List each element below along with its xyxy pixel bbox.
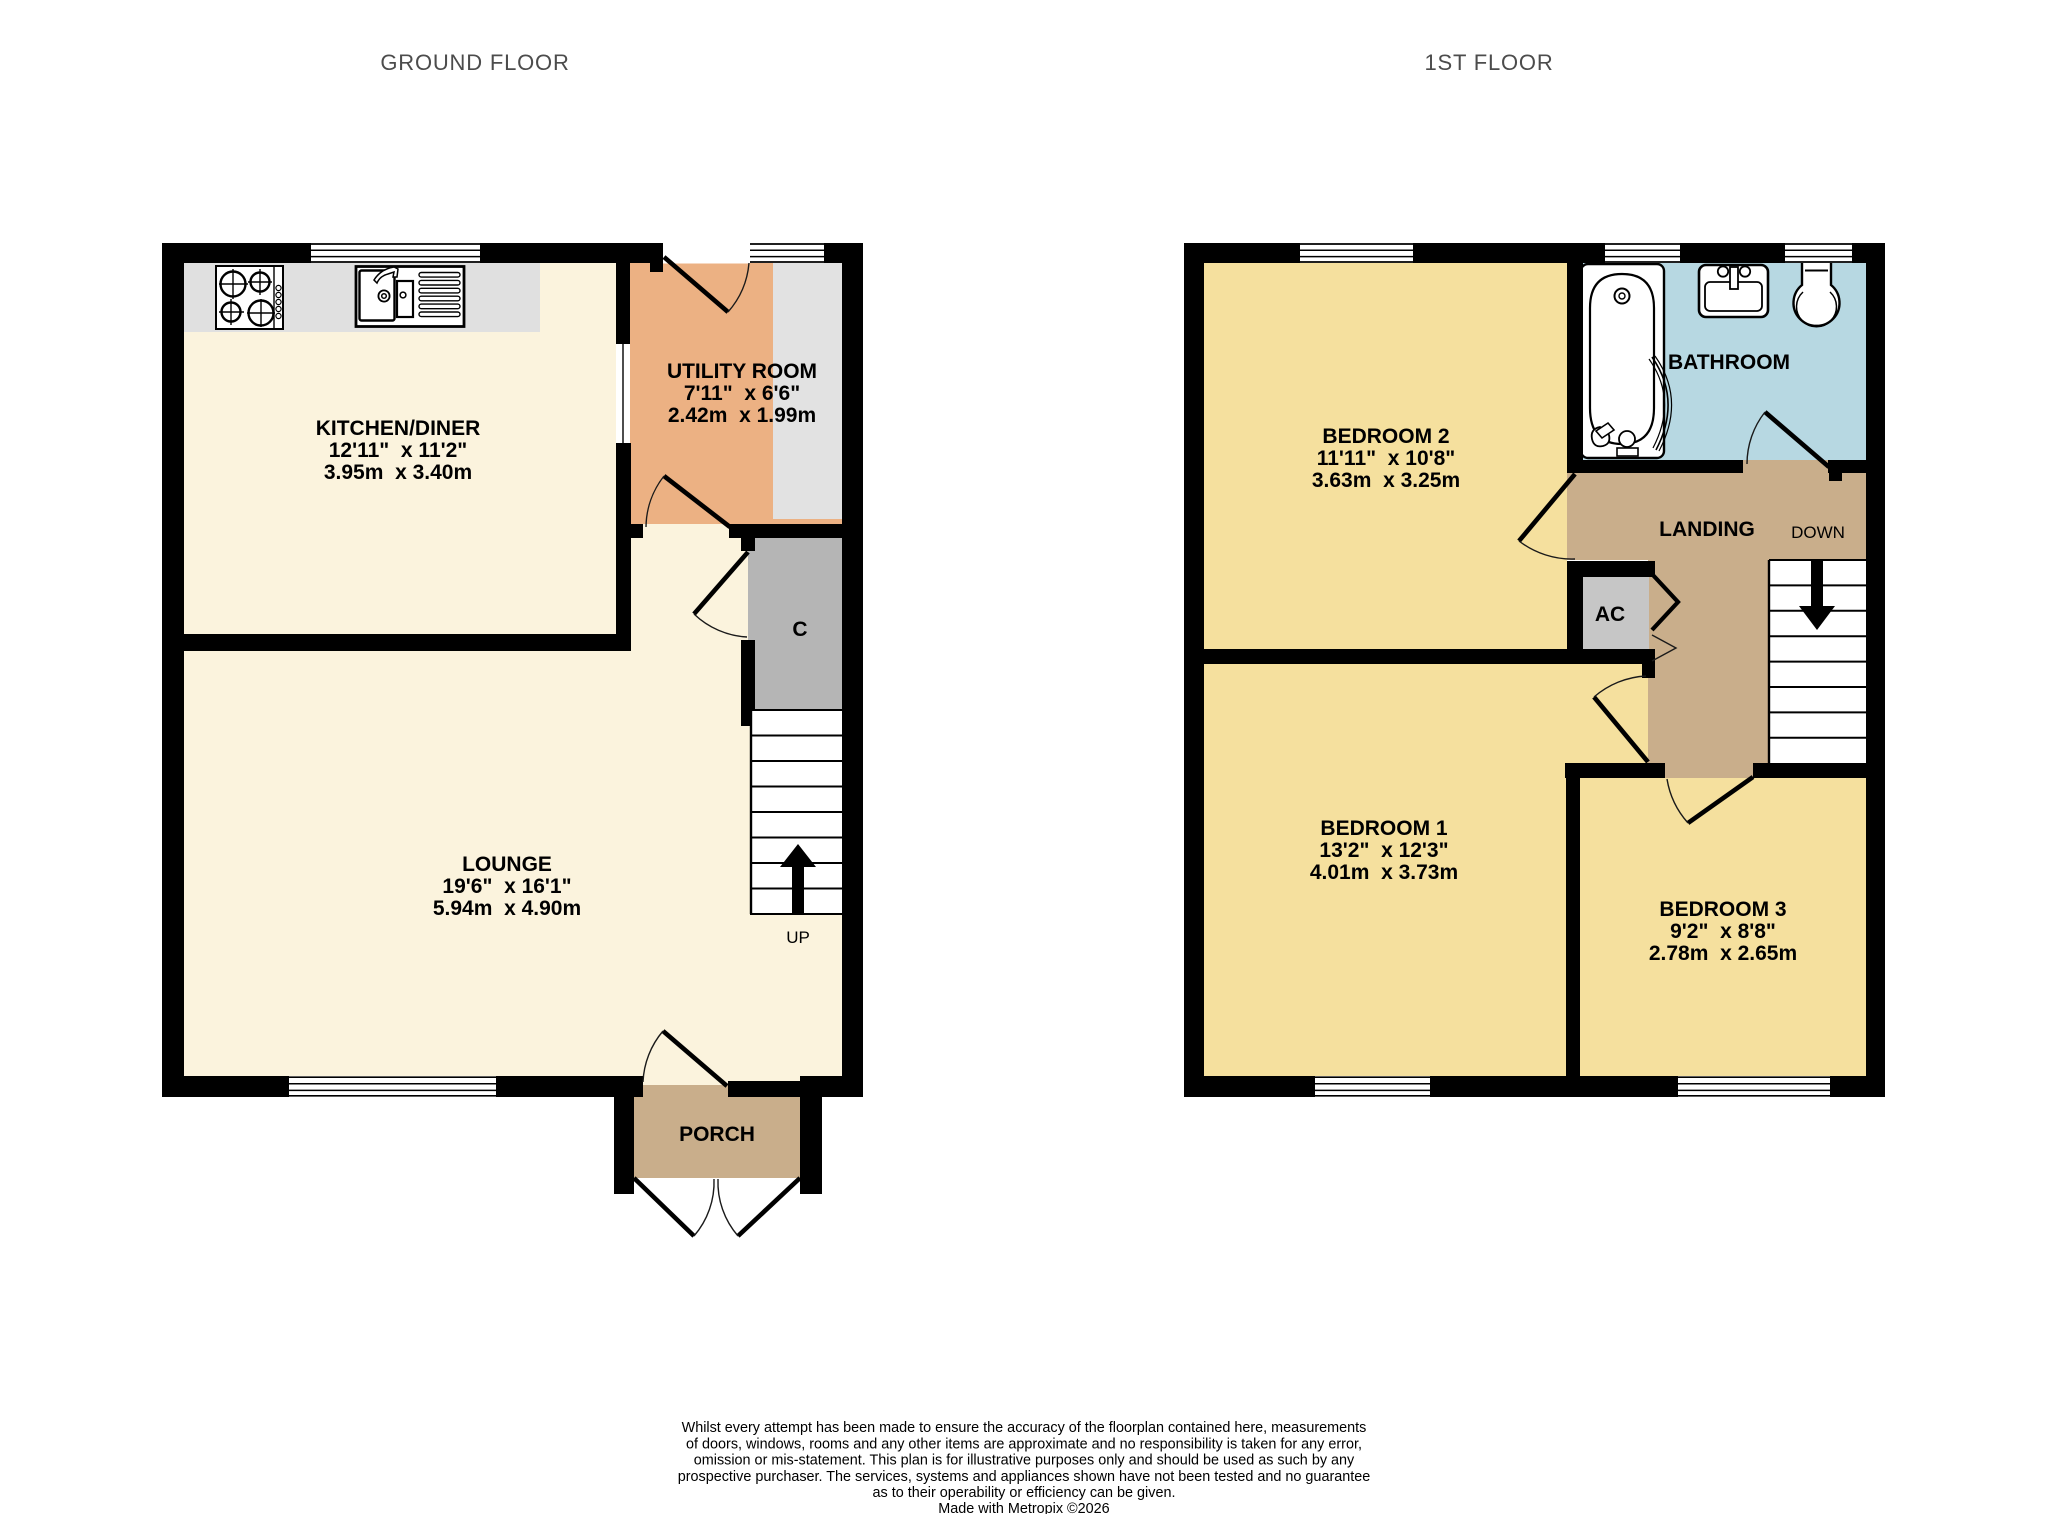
- svg-text:BEDROOM 3: BEDROOM 3: [1659, 898, 1786, 921]
- svg-text:13'2" x 12'3": 13'2" x 12'3": [1319, 839, 1448, 862]
- svg-text:LANDING: LANDING: [1659, 518, 1755, 541]
- svg-text:BATHROOM: BATHROOM: [1668, 351, 1790, 374]
- svg-text:C: C: [792, 618, 807, 641]
- svg-text:19'6" x 16'1": 19'6" x 16'1": [442, 875, 571, 898]
- svg-text:of doors, windows, rooms and a: of doors, windows, rooms and any other i…: [686, 1436, 1362, 1452]
- svg-text:DOWN: DOWN: [1791, 523, 1845, 542]
- svg-text:PORCH: PORCH: [679, 1123, 755, 1146]
- svg-text:omission or mis-statement. Thi: omission or mis-statement. This plan is …: [694, 1453, 1355, 1469]
- svg-text:UTILITY ROOM: UTILITY ROOM: [667, 360, 817, 383]
- svg-text:prospective purchaser. The ser: prospective purchaser. The services, sys…: [678, 1469, 1371, 1485]
- svg-text:BEDROOM 1: BEDROOM 1: [1320, 817, 1448, 840]
- svg-text:as to their operability or eff: as to their operability or efficiency ca…: [873, 1485, 1176, 1501]
- svg-text:1ST FLOOR: 1ST FLOOR: [1424, 50, 1553, 75]
- svg-text:Whilst every attempt has been: Whilst every attempt has been made to en…: [682, 1420, 1367, 1436]
- svg-text:3.63m x 3.25m: 3.63m x 3.25m: [1312, 469, 1460, 492]
- svg-text:11'11" x 10'8": 11'11" x 10'8": [1317, 447, 1456, 470]
- svg-text:Made with Metropix ©2026: Made with Metropix ©2026: [938, 1501, 1109, 1514]
- svg-text:LOUNGE: LOUNGE: [462, 853, 552, 876]
- svg-text:2.78m x 2.65m: 2.78m x 2.65m: [1649, 942, 1797, 965]
- svg-text:GROUND FLOOR: GROUND FLOOR: [380, 50, 569, 75]
- svg-text:AC: AC: [1595, 603, 1625, 626]
- svg-text:5.94m x 4.90m: 5.94m x 4.90m: [433, 897, 581, 920]
- svg-text:BEDROOM 2: BEDROOM 2: [1322, 425, 1449, 448]
- svg-text:7'11" x 6'6": 7'11" x 6'6": [684, 382, 800, 405]
- svg-text:2.42m x 1.99m: 2.42m x 1.99m: [668, 404, 816, 427]
- svg-text:4.01m x 3.73m: 4.01m x 3.73m: [1310, 861, 1458, 884]
- svg-text:UP: UP: [786, 928, 810, 947]
- svg-text:3.95m x 3.40m: 3.95m x 3.40m: [324, 461, 472, 484]
- svg-text:12'11" x 11'2": 12'11" x 11'2": [329, 439, 468, 462]
- svg-text:9'2" x 8'8": 9'2" x 8'8": [1670, 920, 1776, 943]
- svg-text:KITCHEN/DINER: KITCHEN/DINER: [316, 417, 481, 440]
